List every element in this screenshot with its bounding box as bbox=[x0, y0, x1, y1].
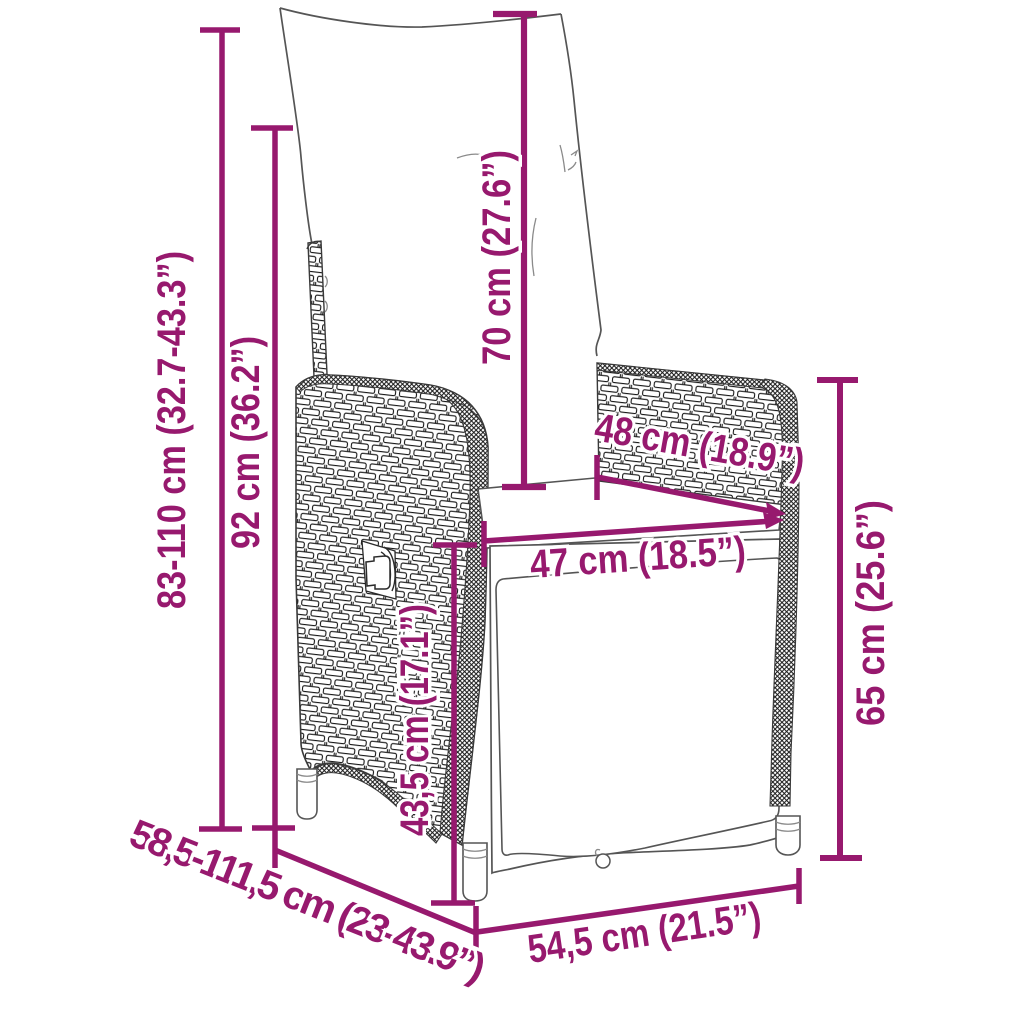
svg-text:70 cm (27.6”): 70 cm (27.6”) bbox=[475, 150, 519, 365]
svg-text:43,5 cm (17.1”): 43,5 cm (17.1”) bbox=[393, 604, 437, 836]
svg-text:92 cm (36.2”): 92 cm (36.2”) bbox=[224, 336, 268, 549]
svg-text:65 cm (25.6”): 65 cm (25.6”) bbox=[849, 500, 893, 726]
svg-text:83-110 cm (32.7-43.3”): 83-110 cm (32.7-43.3”) bbox=[150, 251, 194, 609]
